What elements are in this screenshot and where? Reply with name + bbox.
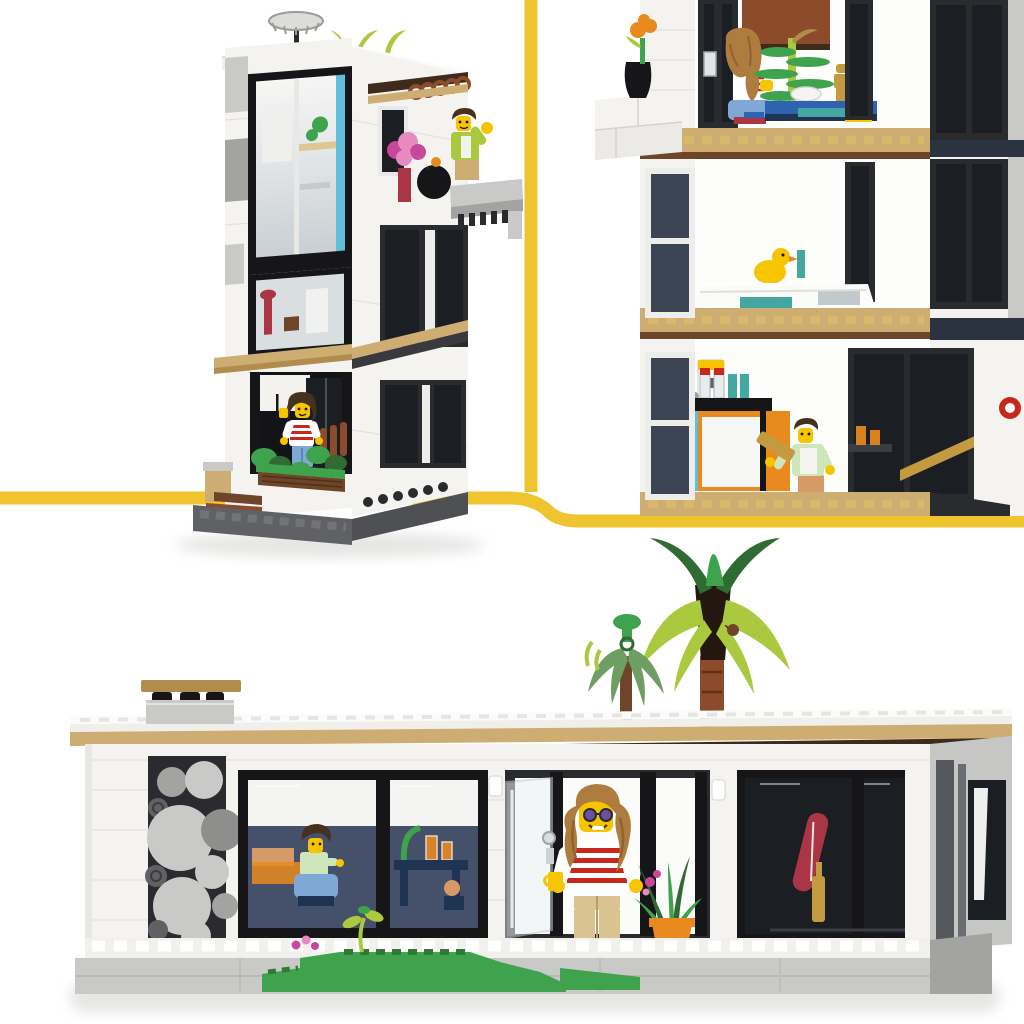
tower-right-face — [352, 47, 469, 517]
bungalow-right-face — [930, 736, 1012, 950]
scene-canvas — [0, 0, 1024, 1024]
tower-right-windows-lower — [380, 380, 466, 468]
corner-quoin-1 — [225, 56, 248, 113]
corner-quoin-3 — [225, 243, 244, 284]
interior-closeup — [595, 0, 1024, 516]
closeup-floor3 — [695, 0, 930, 130]
yellow-item — [760, 80, 773, 91]
wall-lamp-1 — [489, 776, 502, 796]
azure-accent-strip — [336, 75, 345, 252]
wooden-figure — [444, 880, 460, 896]
bungalow-doorway — [505, 770, 710, 956]
lego-product-photo — [0, 0, 1024, 1024]
closeup-right-windows-f2 — [930, 159, 1008, 309]
glass-mug — [704, 52, 716, 76]
kitchen-right-window — [848, 348, 988, 500]
corner-quoin-2 — [225, 138, 248, 202]
rooftop-table — [141, 680, 241, 724]
white-bowl — [791, 87, 821, 101]
red-wall-clock — [999, 397, 1021, 419]
kitchen-right-pillar — [974, 340, 1024, 516]
tower-front-window-lower — [248, 267, 352, 357]
yellow-mug — [279, 408, 288, 418]
corner-pillar — [905, 762, 933, 944]
tower-front-window-upper — [248, 66, 352, 266]
tower-terrace — [250, 372, 352, 492]
wall-lamp-2 — [712, 780, 725, 800]
closeup-kitchen — [640, 339, 1024, 516]
navy-table — [394, 860, 468, 870]
bungalow-window-right — [737, 762, 933, 944]
open-glass-door — [506, 778, 555, 938]
closeup-floor2 — [693, 159, 930, 312]
bathtub — [693, 284, 876, 312]
closeup-right-windows-f3 — [930, 0, 1008, 140]
